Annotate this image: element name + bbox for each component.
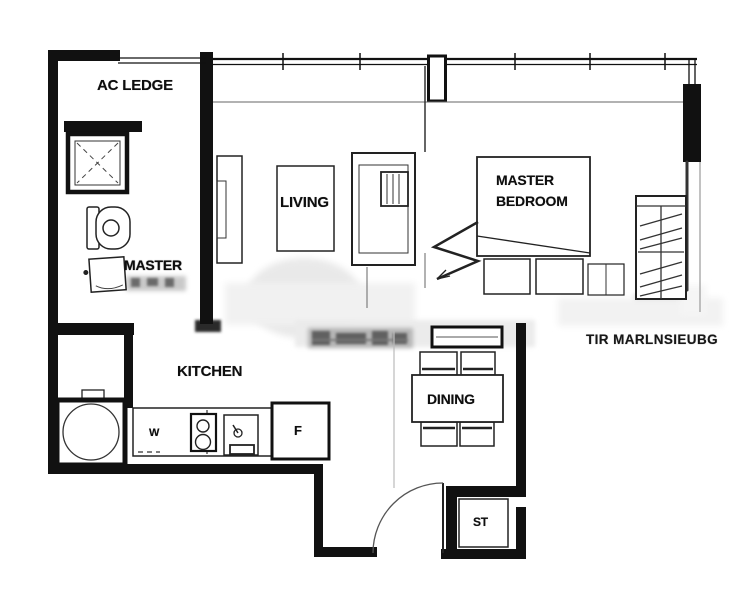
wall-store-north [446,486,526,497]
wall-acledge-bottom [64,121,142,132]
hob-icon [191,414,216,451]
tv-icon [381,172,408,206]
wall-right-column [683,84,701,162]
label-project-name: TIR MARLNSIEUBG [586,329,718,350]
erased-bath-text [131,278,174,287]
wall-bath-step [124,330,133,408]
label-ac-ledge: AC LEDGE [97,75,173,96]
wardrobe [636,196,686,299]
wall-living-west [200,52,213,324]
label-master-bath: MASTER [124,255,182,276]
wall-lower-right [516,507,526,559]
wall-store-west [446,486,457,559]
basin-icon [82,257,126,293]
label-living: LIVING [280,192,329,213]
entrance-door [373,483,443,553]
dining-console [432,327,502,347]
door-swing-arc [373,483,443,553]
window-ticks [283,53,665,70]
zigzag-mark [434,222,478,279]
toilet-icon [87,207,130,249]
label-fridge: F [294,420,302,441]
floorplan-page: AC LEDGE LIVING MASTER BEDROOM MASTER KI… [0,0,744,600]
wall-entry-south [314,547,377,557]
column-mid [429,56,446,101]
side-table [588,264,624,295]
tv-console [352,153,415,265]
entry-shelf [217,156,242,263]
wall-entry-west [314,464,323,557]
label-dining: DINING [427,389,475,410]
label-store: ST [473,512,488,533]
label-washer: W [149,423,159,444]
acledge-railing [118,58,206,63]
sink-icon [224,415,258,455]
wall-dining-east [516,323,526,495]
ac-shaft [68,134,127,192]
label-master-bedroom: MASTER BEDROOM [496,170,568,212]
washer-icon [57,390,125,465]
label-kitchen: KITCHEN [177,361,242,382]
wall-bath-south [58,323,134,335]
wall-top-left [48,50,120,61]
